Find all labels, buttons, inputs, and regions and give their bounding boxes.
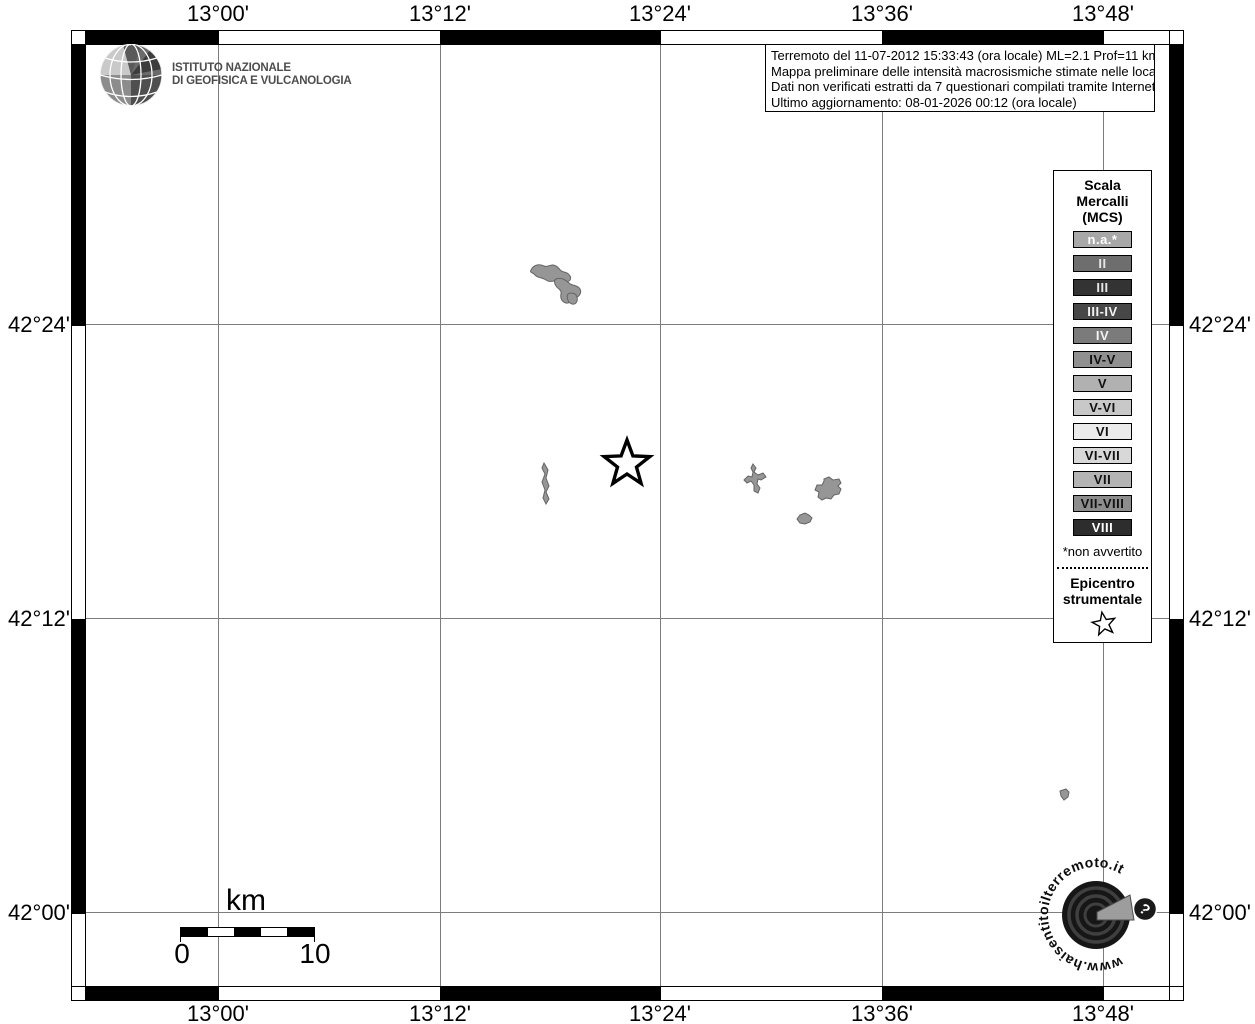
legend-epicenter-line: strumentale bbox=[1054, 591, 1151, 607]
info-update-line: Ultimo aggiornamento: 08-01-2026 00:12 (… bbox=[771, 95, 1149, 111]
legend-swatch-v: V bbox=[1073, 375, 1132, 392]
frame-corner bbox=[71, 986, 86, 1001]
locality-polygon bbox=[567, 293, 577, 304]
scalebar-unit-label: km bbox=[226, 884, 266, 918]
ingv-globe-icon bbox=[98, 42, 164, 108]
ingv-branding: ISTITUTO NAZIONALE DI GEOFISICA E VULCAN… bbox=[98, 42, 351, 108]
legend-swatch-vi: VI bbox=[1073, 423, 1132, 440]
legend-swatch-iii: III bbox=[1073, 279, 1132, 296]
locality-polygon bbox=[815, 477, 841, 500]
scalebar-end-label: 10 bbox=[297, 938, 333, 970]
legend-swatch-vii-viii: VII-VIII bbox=[1073, 495, 1132, 512]
legend-swatch-iv-v: IV-V bbox=[1073, 351, 1132, 368]
locality-polygon bbox=[1060, 789, 1069, 800]
scalebar bbox=[180, 927, 315, 937]
legend-title-line: Mercalli bbox=[1054, 193, 1151, 209]
epicenter-star-icon bbox=[597, 434, 657, 494]
locality-polygon bbox=[797, 513, 812, 524]
macroseismic-intensity-map: 13°00' 13°12' 13°24' 13°36' 13°48' 13°00… bbox=[0, 0, 1255, 1024]
frame-corner bbox=[1169, 30, 1184, 45]
scalebar-start-label: 0 bbox=[170, 938, 194, 970]
legend-swatch-iv: IV bbox=[1073, 327, 1132, 344]
haisentitoilterremoto-logo: ? www.haisentitoilterremoto.it bbox=[1026, 845, 1166, 985]
info-data-line: Dati non verificati estratti da 7 questi… bbox=[771, 79, 1149, 95]
legend-swatch-na: n.a.* bbox=[1073, 231, 1132, 248]
ingv-name-line2: DI GEOFISICA E VULCANOLOGIA bbox=[172, 75, 351, 88]
locality-polygon bbox=[744, 464, 766, 493]
legend-swatch-vi-vii: VI-VII bbox=[1073, 447, 1132, 464]
legend-epicenter-star-icon bbox=[1089, 609, 1119, 639]
legend-swatch-iii-iv: III-IV bbox=[1073, 303, 1132, 320]
info-map-line: Mappa preliminare delle intensità macros… bbox=[771, 64, 1149, 80]
earthquake-info-box: Terremoto del 11-07-2012 15:33:43 (ora l… bbox=[765, 44, 1155, 112]
mercalli-scale-legend: Scala Mercalli (MCS) n.a.* II III III-IV… bbox=[1053, 170, 1152, 643]
legend-swatch-ii: II bbox=[1073, 255, 1132, 272]
ingv-name-line1: ISTITUTO NAZIONALE bbox=[172, 62, 351, 75]
legend-footnote: *non avvertito bbox=[1054, 544, 1151, 559]
frame-corner bbox=[71, 30, 86, 45]
legend-epicenter-line: Epicentro bbox=[1054, 575, 1151, 591]
legend-swatch-v-vi: V-VI bbox=[1073, 399, 1132, 416]
legend-divider bbox=[1057, 567, 1148, 569]
legend-swatch-vii: VII bbox=[1073, 471, 1132, 488]
legend-swatch-viii: VIII bbox=[1073, 519, 1132, 536]
legend-title-line: (MCS) bbox=[1054, 209, 1151, 225]
frame-corner bbox=[1169, 986, 1184, 1001]
legend-title-line: Scala bbox=[1054, 177, 1151, 193]
locality-polygon bbox=[542, 463, 549, 504]
info-event-line: Terremoto del 11-07-2012 15:33:43 (ora l… bbox=[771, 48, 1149, 64]
